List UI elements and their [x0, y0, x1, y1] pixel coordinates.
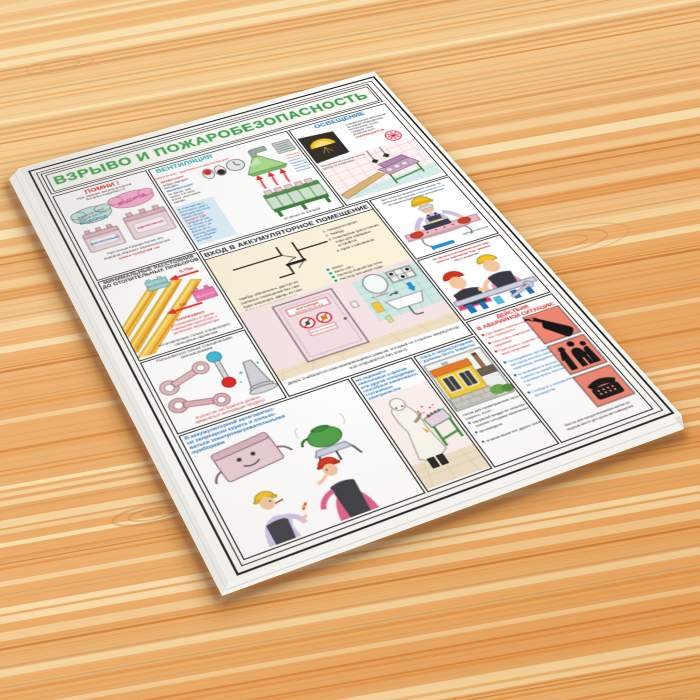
- svg-text:✦: ✦: [237, 370, 246, 378]
- svg-text:но: но: [526, 383, 533, 388]
- svg-text:✦: ✦: [238, 379, 246, 385]
